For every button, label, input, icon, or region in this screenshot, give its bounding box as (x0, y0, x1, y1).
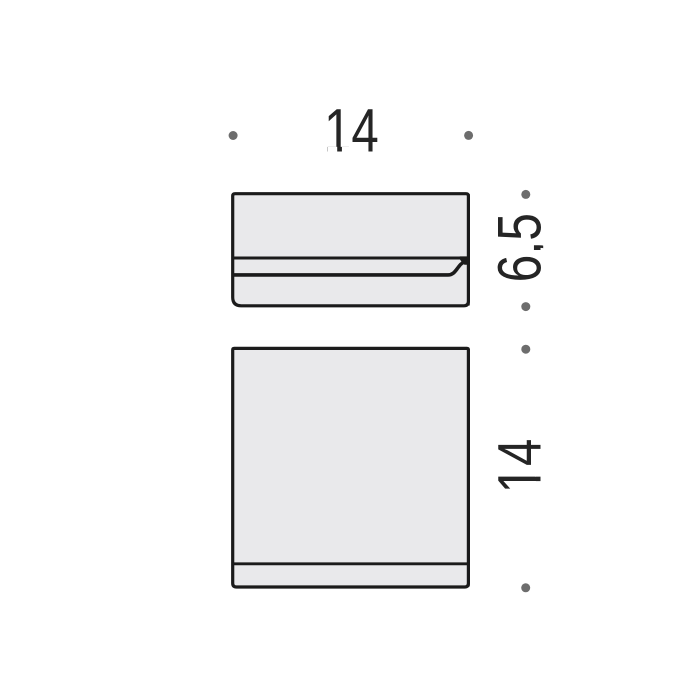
svg-text:14: 14 (324, 96, 379, 164)
svg-text:14: 14 (485, 439, 553, 494)
